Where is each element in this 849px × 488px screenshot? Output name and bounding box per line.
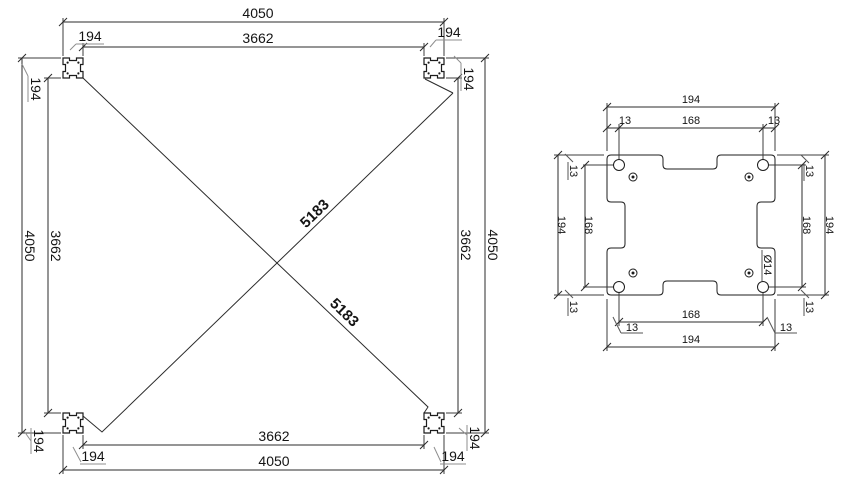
frame-plan-view: 4050 3662 194 194 4050 3662 194 194 3662… — [18, 5, 501, 474]
dim-corner-offset-top-left: 194 — [78, 28, 102, 44]
dim-corner-offset-right-bottom: 194 — [467, 426, 483, 450]
drawing-svg: 4050 3662 194 194 4050 3662 194 194 3662… — [0, 0, 849, 488]
dim-corner-offset-left-top: 194 — [28, 77, 44, 101]
plate-dim-right-overall: 194 — [823, 216, 835, 234]
frame-diagonal-braces — [83, 78, 453, 432]
frame-leader-lines — [22, 40, 467, 464]
frame-dimension-lines — [22, 22, 485, 470]
dim-corner-offset-top-right: 194 — [437, 24, 461, 40]
frame-dimension-ticks — [18, 18, 489, 474]
plate-dim-top-offset-left: 13 — [619, 115, 631, 127]
corner-post-bottom-left — [63, 413, 83, 433]
plate-dim-left-offset-bottom: 13 — [567, 301, 579, 313]
rivet-bottom-right — [745, 269, 753, 277]
dim-bottom-inner: 3662 — [258, 428, 289, 444]
plate-dimension-labels: 194 13 168 13 194 168 13 13 168 194 13 1… — [555, 94, 835, 346]
plate-dim-top-hole-spacing: 168 — [682, 115, 700, 127]
rivet-top-left — [629, 173, 637, 181]
dim-right-overall: 4050 — [485, 229, 501, 260]
dim-top-overall: 4050 — [242, 5, 273, 21]
plate-dim-top-offset-right: 13 — [768, 115, 780, 127]
hole-bottom-right — [758, 282, 769, 293]
plate-dim-right-offset-top: 13 — [803, 165, 815, 177]
dim-top-inner: 3662 — [242, 30, 273, 46]
plate-leader-lines — [565, 154, 809, 333]
dim-right-inner: 3662 — [458, 229, 474, 260]
plate-dim-top-overall: 194 — [682, 94, 700, 106]
dim-left-overall: 4050 — [22, 230, 38, 261]
hole-bottom-left — [614, 282, 625, 293]
technical-drawing-sheet: 4050 3662 194 194 4050 3662 194 194 3662… — [0, 0, 849, 488]
corner-post-bottom-right — [424, 413, 444, 433]
frame-extension-lines — [18, 18, 489, 474]
plate-rivet-marks — [629, 173, 753, 277]
plate-dim-left-offset-top: 13 — [567, 165, 579, 177]
plate-dim-bottom-hole-spacing: 168 — [682, 309, 700, 321]
dim-corner-offset-left-bottom: 194 — [31, 429, 47, 453]
plate-dim-left-hole-spacing: 168 — [582, 216, 594, 234]
dim-bottom-overall: 4050 — [258, 453, 289, 469]
plate-dim-right-hole-spacing: 168 — [800, 216, 812, 234]
rivet-bottom-left — [629, 269, 637, 277]
dim-corner-offset-bottom-right: 194 — [441, 448, 465, 464]
dim-diagonal-2: 5183 — [326, 295, 362, 330]
plate-dim-bottom-offset-right: 13 — [780, 322, 792, 334]
plate-dim-hole-diameter: Ø14 — [761, 255, 773, 276]
dim-left-inner: 3662 — [48, 230, 64, 261]
dim-corner-offset-bottom-left: 194 — [81, 448, 105, 464]
dim-corner-offset-right-top: 194 — [461, 67, 477, 91]
corner-plate-detail-view: 194 13 168 13 194 168 13 13 168 194 13 1… — [554, 94, 835, 351]
plate-dim-bottom-overall: 194 — [682, 334, 700, 346]
hole-top-right — [758, 160, 769, 171]
rivet-top-right — [745, 173, 753, 181]
frame-corner-posts — [63, 58, 444, 433]
plate-dim-right-offset-bottom: 13 — [803, 301, 815, 313]
plate-dim-left-overall: 194 — [555, 216, 567, 234]
corner-post-top-right — [424, 58, 444, 78]
hole-top-left — [614, 160, 625, 171]
plate-dim-bottom-offset-left: 13 — [626, 322, 638, 334]
corner-post-top-left — [63, 58, 83, 78]
